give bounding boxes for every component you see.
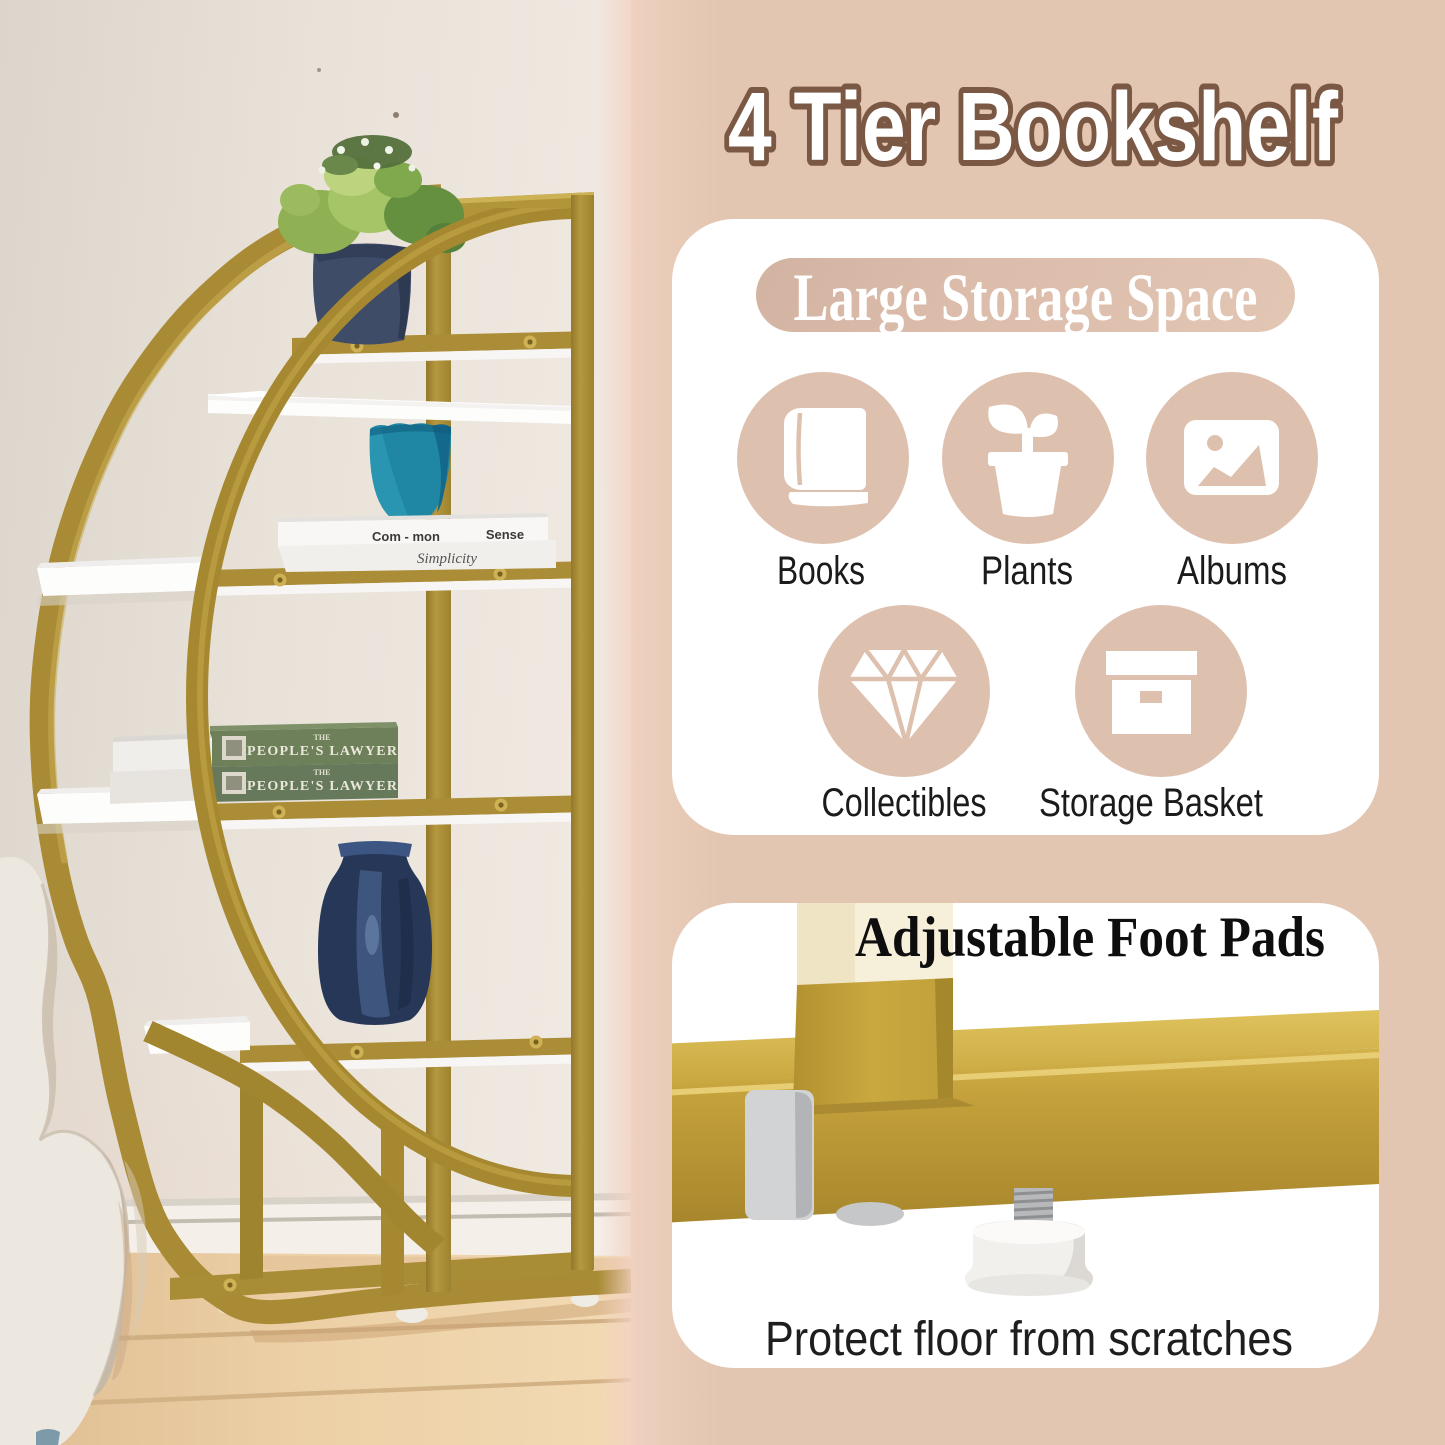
svg-text:Plants: Plants — [981, 549, 1073, 593]
svg-text:THE: THE — [314, 733, 331, 742]
svg-text:Large Storage Space: Large Storage Space — [794, 259, 1258, 332]
svg-text:Storage Basket: Storage Basket — [1039, 781, 1263, 825]
svg-text:Sense: Sense — [486, 527, 524, 542]
svg-text:Collectibles: Collectibles — [822, 781, 987, 825]
svg-text:4 Tier Bookshelf: 4 Tier Bookshelf — [728, 72, 1339, 181]
svg-text:THE: THE — [314, 768, 331, 777]
svg-text:Albums: Albums — [1177, 549, 1287, 593]
svg-text:Simplicity: Simplicity — [417, 551, 477, 567]
svg-text:Books: Books — [777, 549, 865, 593]
svg-text:Adjustable Foot Pads: Adjustable Foot Pads — [855, 906, 1325, 969]
svg-text:Com - mon: Com - mon — [372, 529, 440, 544]
svg-text:Protect floor from scratches: Protect floor from scratches — [765, 1313, 1293, 1366]
